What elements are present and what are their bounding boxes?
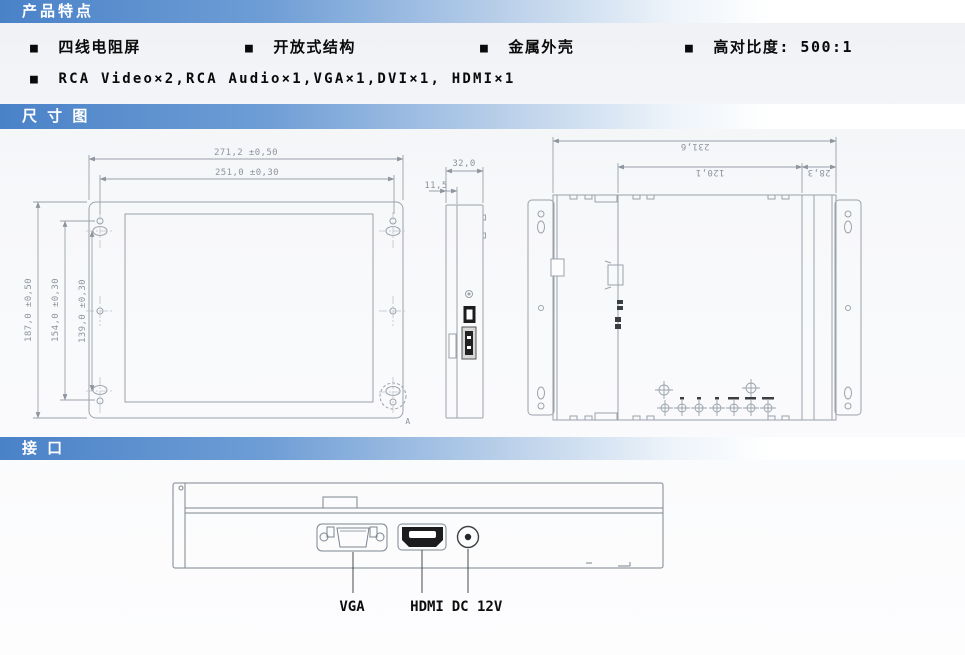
feature-item-open-frame: ■ 开放式结构 [245, 36, 356, 58]
dim-front-height-total: 187,0 ±0,50 [24, 278, 34, 342]
dim-front-height-holes-inner: 139,0 ±0,30 [78, 279, 88, 343]
dim-side-depth: 32,0 [452, 159, 475, 169]
bullet-square-icon: ■ [245, 38, 253, 60]
dc-jack [458, 527, 479, 548]
side-hdmi-connector [464, 306, 476, 323]
section-title-dimensions: 尺 寸 图 [22, 108, 90, 125]
feature-item-metal-case: ■ 金属外壳 [480, 36, 574, 58]
feature-item-touchscreen: ■ 四线电阻屏 [30, 36, 141, 58]
back-osd-buttons [655, 379, 776, 416]
side-vga-connector [462, 327, 476, 359]
dim-back-width-right: 28,3 [807, 167, 830, 177]
feature-label: 四线电阻屏 [58, 38, 141, 56]
dim-front-width-total: 271,2 ±0,50 [214, 148, 278, 158]
section-title-features: 产品特点 [22, 3, 94, 20]
interface-view-drawing [173, 483, 663, 593]
detail-a-label: A [405, 417, 410, 426]
side-mount-tab [449, 334, 456, 358]
feature-item-contrast: ■ 高对比度: 500:1 [685, 36, 853, 58]
front-view-drawing [86, 202, 407, 418]
front-screen-area [125, 214, 373, 402]
bullet-square-icon: ■ [685, 38, 693, 60]
back-body-outline [553, 195, 836, 420]
hdmi-connector [398, 524, 446, 550]
port-label-hdmi: HDMI [410, 599, 444, 615]
section-bar-interface: 接 口 [0, 437, 965, 460]
dim-front-height-holes-outer: 154,0 ±0,30 [51, 278, 61, 342]
technical-drawings: 271,2 ±0,50 251,0 ±0,30 187,0 ±0,50 154,… [0, 0, 965, 655]
dim-back-width-mid: 120,1 [695, 167, 724, 177]
bullet-square-icon: ■ [30, 38, 38, 60]
back-view-drawing [528, 195, 861, 420]
section-title-interface: 接 口 [22, 440, 65, 457]
dim-side-front-thickness: 11,5 [424, 181, 447, 191]
port-label-dc12v: DC 12V [452, 599, 503, 615]
dim-front-width-holes: 251,0 ±0,30 [215, 168, 279, 178]
back-port-micro-labels [615, 300, 623, 329]
datasheet-page: 271,2 ±0,50 251,0 ±0,30 187,0 ±0,50 154,… [0, 0, 965, 655]
feature-label: 高对比度: 500:1 [713, 38, 853, 56]
bullet-square-icon: ■ [30, 69, 38, 91]
back-right-bracket [835, 200, 861, 415]
feature-label: 开放式结构 [273, 38, 356, 56]
back-connector-cutout [605, 261, 623, 289]
feature-item-io: ■ RCA Video×2,RCA Audio×1,VGA×1,DVI×1, H… [30, 68, 516, 90]
front-body-outline [89, 202, 403, 418]
feature-label: 金属外壳 [508, 38, 574, 56]
vga-connector [317, 524, 387, 551]
back-left-bracket [528, 200, 554, 415]
port-leader-lines [353, 549, 468, 593]
port-label-vga: VGA [339, 599, 365, 615]
section-bar-dimensions: 尺 寸 图 [0, 104, 965, 129]
side-view-drawing [446, 205, 486, 418]
section-bar-features: 产品特点 [0, 0, 965, 23]
bullet-square-icon: ■ [480, 38, 488, 60]
dim-back-width-body: 231,6 [680, 141, 709, 151]
feature-label: RCA Video×2,RCA Audio×1,VGA×1,DVI×1, HDM… [58, 71, 515, 87]
bottom-tab [323, 497, 357, 508]
